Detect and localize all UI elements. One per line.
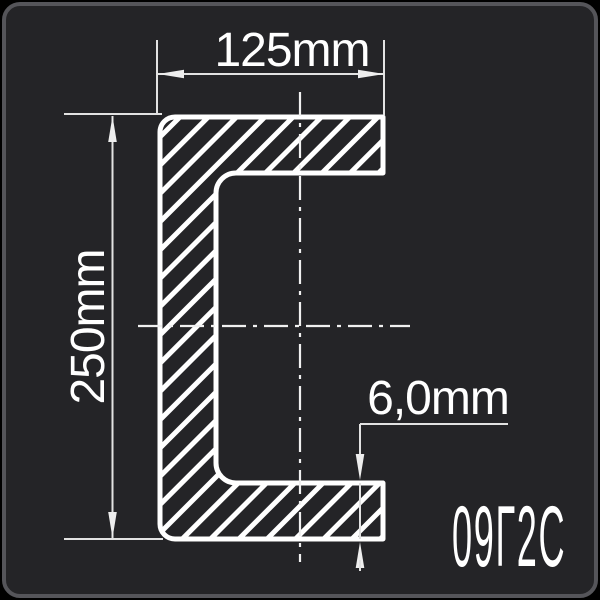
thickness-dimension-label: 6,0mm bbox=[367, 372, 509, 425]
channel-cross-section-drawing: 125mm 250mm 6,0mm 09Г2С bbox=[0, 0, 600, 600]
height-arrow-top bbox=[108, 116, 117, 142]
height-arrow-bottom bbox=[108, 512, 117, 538]
channel-profile-shape bbox=[160, 117, 383, 539]
width-dimension-label: 125mm bbox=[214, 24, 369, 77]
width-arrow-left bbox=[158, 70, 184, 78]
height-dimension-label: 250mm bbox=[62, 249, 115, 404]
steel-grade-label: 09Г2С bbox=[452, 488, 566, 584]
thickness-arrow-down bbox=[356, 454, 365, 480]
